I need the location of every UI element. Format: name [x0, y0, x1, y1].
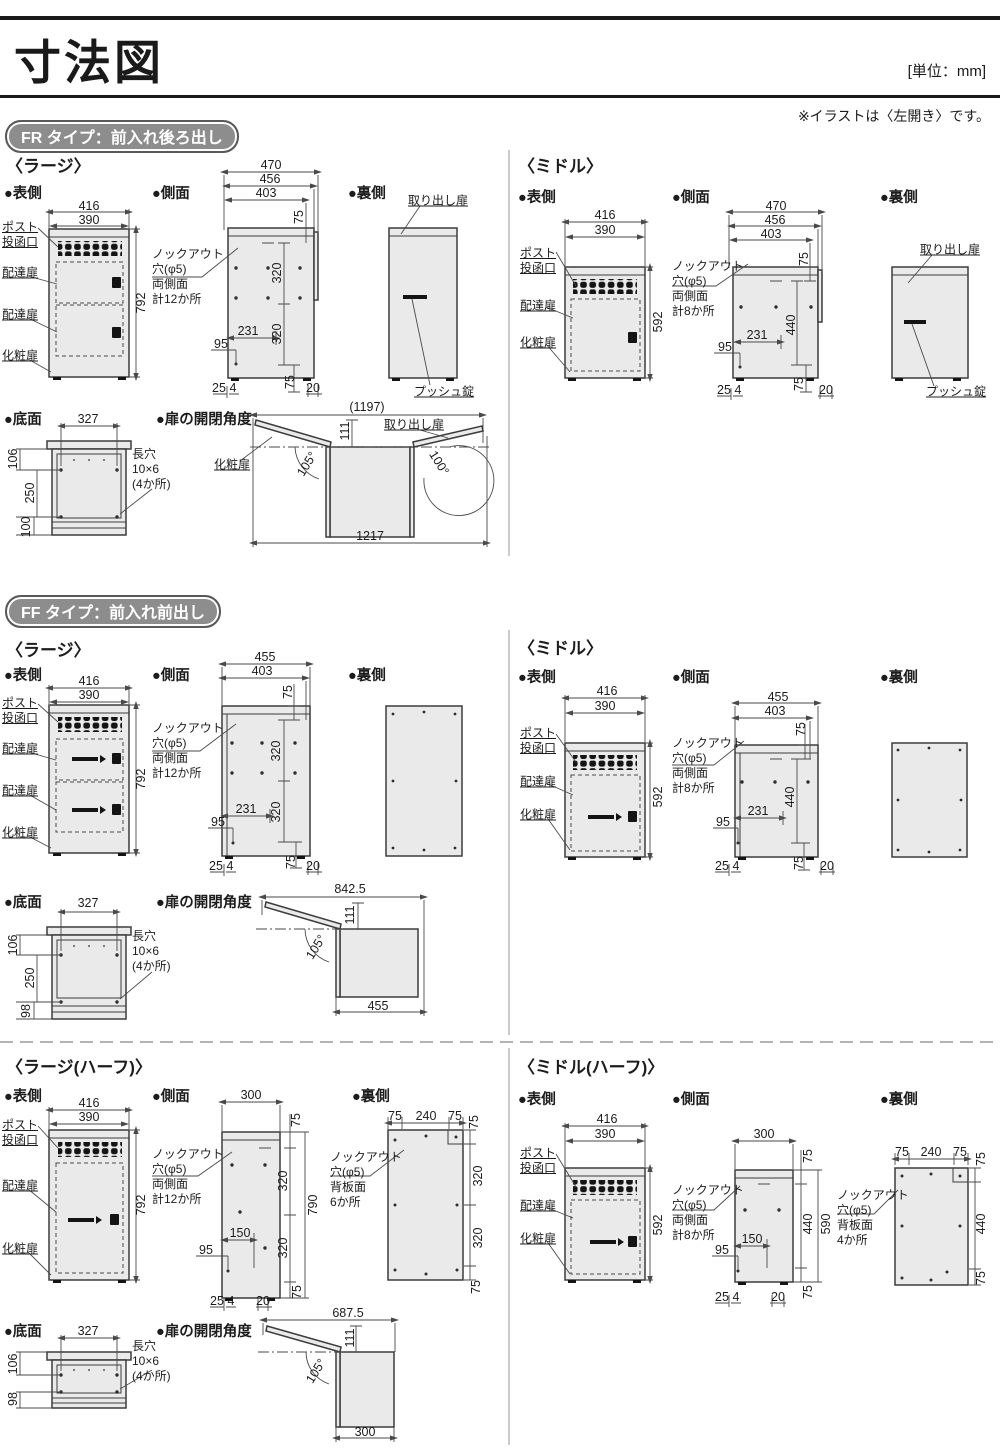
dim-bottom-width: 327: [78, 1324, 99, 1338]
dim-side-depth-inner: 403: [761, 227, 782, 241]
dim-front-height: 792: [134, 293, 148, 314]
dim-side: 25: [212, 381, 226, 395]
dimension-sheet: 寸法図 [単位：mm] ※イラストは〈左開き〉です。 FR タイプ：前入れ後ろ出…: [0, 0, 1000, 1456]
dim-front-width-outer: 416: [79, 199, 100, 213]
dim-knockout-pitch: 320: [276, 1238, 290, 1259]
dim-open: 111: [343, 905, 357, 924]
dim-side: 95: [718, 340, 732, 354]
dim-front-height: 792: [134, 1195, 148, 1216]
label-takeout-door: 取り出し扉: [384, 416, 444, 433]
dim-open-width: 687.5: [332, 1306, 363, 1320]
dim-front-width-outer: 416: [595, 208, 616, 222]
dim-front-width-outer: 416: [597, 684, 618, 698]
dim-side: 4: [228, 1294, 235, 1308]
dim-bottom: 106: [6, 449, 20, 470]
dim-side: 231: [238, 324, 259, 338]
dim-side-height: 590: [819, 1214, 833, 1235]
dim-side-height: 790: [306, 1195, 320, 1216]
dim-bottom: 100: [19, 517, 33, 538]
view-title-door-angle: ●扉の開閉角度: [156, 891, 252, 912]
label-push-lock: プッシュ錠: [414, 383, 474, 400]
dim-back: 75: [974, 1152, 988, 1166]
view-title-bottom: ●底面: [4, 1320, 42, 1341]
view-title-back: ●裏側: [352, 1085, 390, 1106]
label-delivery-door: 配達扉: [2, 740, 38, 757]
dim-side-depth: 456: [765, 213, 786, 227]
view-title-back: ●裏側: [348, 664, 386, 685]
dim-knockout-pitch: 320: [270, 324, 284, 345]
dim-side: 25: [210, 1294, 224, 1308]
label-delivery-door: 配達扉: [2, 1177, 38, 1194]
dim-back-width: 75: [953, 1145, 967, 1159]
label-delivery-door: 配達扉: [2, 782, 38, 799]
view-title-front: ●表側: [4, 664, 42, 685]
view-title-side: ●側面: [152, 664, 190, 685]
label-post-slot: ポスト 投函口: [2, 220, 38, 249]
dim-side: 4: [227, 859, 234, 873]
dim-side-depth-inner: 403: [252, 664, 273, 678]
dim-side: 231: [748, 804, 769, 818]
dim-back: 320: [471, 1228, 485, 1249]
dim-side-depth: 455: [255, 650, 276, 664]
dim-side: 75: [290, 1285, 304, 1299]
label-decorative-door: 化粧扉: [2, 347, 38, 364]
view-title-front: ●表側: [4, 1085, 42, 1106]
dim-side-depth: 300: [241, 1088, 262, 1102]
dim-side: 4: [733, 859, 740, 873]
dim-side: 75: [792, 856, 806, 870]
view-title-back: ●裏側: [880, 1088, 918, 1109]
note-slotted-hole: 長穴 10×6 (4か所): [132, 447, 171, 492]
note-slotted-hole: 長穴 10×6 (4か所): [132, 1339, 171, 1384]
dim-side: 20: [306, 381, 320, 395]
dim-bottom-width: 327: [78, 896, 99, 910]
dim-front-width-inner: 390: [79, 213, 100, 227]
subsection-title-middle-half: 〈ミドル(ハーフ)〉: [518, 1053, 664, 1078]
dim-knockout-pitch: 320: [276, 1171, 290, 1192]
dim-back-width: 240: [416, 1109, 437, 1123]
dim-front-width-inner: 390: [79, 688, 100, 702]
label-decorative-door: 化粧扉: [520, 1230, 556, 1247]
note-slotted-hole: 長穴 10×6 (4か所): [132, 929, 171, 974]
dim-back: 320: [471, 1166, 485, 1187]
dim-side: 4: [733, 1290, 740, 1304]
label-decorative-door: 化粧扉: [2, 824, 38, 841]
dim-box-depth: 300: [355, 1425, 376, 1439]
note-knockout-back: ノックアウト 穴(φ5) 背板面 6か所: [330, 1150, 402, 1210]
dim-side: 25: [715, 859, 729, 873]
view-title-back: ●裏側: [880, 666, 918, 687]
subsection-title-middle: 〈ミドル〉: [518, 152, 603, 177]
view-title-front: ●表側: [4, 182, 42, 203]
dim-knockout-pitch: 320: [269, 802, 283, 823]
label-delivery-door: 配達扉: [520, 1197, 556, 1214]
dim-knockout-offset: 75: [292, 210, 306, 224]
dim-side: 95: [716, 815, 730, 829]
label-decorative-door: 化粧扉: [520, 334, 556, 351]
view-title-bottom: ●底面: [4, 408, 42, 429]
note-knockout: ノックアウト 穴(φ5) 両側面 計8か所: [672, 736, 744, 796]
dim-back: 75: [467, 1115, 481, 1129]
dim-knockout-pitch: 440: [784, 315, 798, 336]
label-delivery-door: 配達扉: [520, 773, 556, 790]
dim-open-width: 1217: [356, 529, 384, 543]
dim-front-height: 592: [651, 312, 665, 333]
dim-open-angle-front: 105°: [303, 932, 329, 961]
view-title-side: ●側面: [672, 1088, 710, 1109]
dim-open: 111: [338, 421, 352, 440]
note-knockout: ノックアウト 穴(φ5) 両側面 計12か所: [152, 247, 224, 307]
dim-side: 75: [801, 1285, 815, 1299]
dim-front-height: 792: [134, 769, 148, 790]
dim-front-width-outer: 416: [597, 1112, 618, 1126]
annotation-layer: 〈ラージ〉●表側416390792ポスト 投函口配達扉配達扉化粧扉●側面4704…: [0, 0, 1000, 1456]
dim-knockout-offset: 75: [801, 1149, 815, 1163]
view-title-door-angle: ●扉の開閉角度: [156, 1320, 252, 1341]
view-title-door-angle: ●扉の開閉角度: [156, 408, 252, 429]
dim-bottom: 98: [6, 1392, 20, 1406]
dim-side-depth-inner: 403: [256, 186, 277, 200]
dim-knockout-offset: 75: [281, 685, 295, 699]
subsection-title-large-half: 〈ラージ(ハーフ)〉: [6, 1053, 152, 1078]
label-takeout-door: 取り出し扉: [920, 241, 980, 258]
dim-open-angle-front: 105°: [303, 1356, 329, 1385]
dim-open-width-ref: (1197): [349, 400, 384, 414]
dim-front-width-outer: 416: [79, 674, 100, 688]
dim-side: 4: [735, 383, 742, 397]
dim-open-angle-rear: 100°: [426, 448, 452, 477]
subsection-title-large: 〈ラージ〉: [6, 152, 91, 177]
dim-side: 20: [819, 383, 833, 397]
note-knockout: ノックアウト 穴(φ5) 両側面 計12か所: [152, 1147, 224, 1207]
label-post-slot: ポスト 投函口: [520, 1146, 556, 1175]
label-push-lock: プッシュ錠: [926, 383, 986, 400]
dim-back-width: 75: [388, 1109, 402, 1123]
dim-bottom: 106: [6, 935, 20, 956]
dim-side: 231: [236, 802, 257, 816]
dim-side: 95: [214, 337, 228, 351]
dim-side-depth: 300: [754, 1127, 775, 1141]
dim-front-width-inner: 390: [595, 699, 616, 713]
dim-front-height: 592: [651, 1215, 665, 1236]
dim-open-angle-front: 105°: [294, 449, 320, 478]
dim-bottom: 250: [23, 483, 37, 504]
dim-side: 20: [256, 1294, 270, 1308]
dim-knockout-pitch: 320: [270, 263, 284, 284]
dim-front-width-inner: 390: [79, 1110, 100, 1124]
dim-side: 95: [199, 1243, 213, 1257]
dim-side-depth: 455: [768, 690, 789, 704]
view-title-back: ●裏側: [880, 186, 918, 207]
dim-knockout-offset: 75: [794, 722, 808, 736]
dim-side: 75: [283, 375, 297, 389]
view-title-side: ●側面: [152, 182, 190, 203]
dim-bottom: 250: [23, 968, 37, 989]
label-post-slot: ポスト 投函口: [2, 1118, 38, 1147]
subsection-title-large: 〈ラージ〉: [6, 636, 91, 661]
dim-front-width-inner: 390: [595, 223, 616, 237]
dim-side: 20: [771, 1290, 785, 1304]
note-knockout: ノックアウト 穴(φ5) 両側面 計8か所: [672, 1183, 744, 1243]
dim-knockout-offset: 75: [289, 1113, 303, 1127]
dim-knockout-pitch: 440: [783, 787, 797, 808]
dim-side: 75: [792, 377, 806, 391]
dim-side: 4: [230, 381, 237, 395]
dim-bottom-width: 327: [78, 412, 99, 426]
label-decorative-door: 化粧扉: [2, 1240, 38, 1257]
view-title-side: ●側面: [152, 1085, 190, 1106]
label-delivery-door: 配達扉: [2, 264, 38, 281]
view-title-side: ●側面: [672, 186, 710, 207]
label-post-slot: ポスト 投函口: [520, 246, 556, 275]
view-title-front: ●表側: [518, 1088, 556, 1109]
dim-knockout-offset: 75: [797, 252, 811, 266]
dim-side: 150: [742, 1232, 763, 1246]
subsection-title-middle: 〈ミドル〉: [518, 634, 603, 659]
label-post-slot: ポスト 投函口: [520, 726, 556, 755]
dim-back: 75: [469, 1280, 483, 1294]
dim-side: 20: [820, 859, 834, 873]
view-title-bottom: ●底面: [4, 891, 42, 912]
dim-bottom: 98: [19, 1004, 33, 1018]
view-title-front: ●表側: [518, 186, 556, 207]
dim-side: 95: [715, 1243, 729, 1257]
label-delivery-door: 配達扉: [520, 297, 556, 314]
dim-knockout-pitch: 320: [269, 741, 283, 762]
note-knockout: ノックアウト 穴(φ5) 両側面 計8か所: [672, 259, 744, 319]
dim-back: 440: [974, 1214, 988, 1235]
note-knockout-back: ノックアウト 穴(φ5) 背板面 4か所: [837, 1188, 909, 1248]
dim-bottom: 106: [6, 1354, 20, 1375]
dim-box-depth: 455: [368, 999, 389, 1013]
dim-side: 20: [306, 859, 320, 873]
view-title-back: ●裏側: [348, 182, 386, 203]
dim-back-width: 75: [895, 1145, 909, 1159]
label-decorative-door: 化粧扉: [520, 806, 556, 823]
label-post-slot: ポスト 投函口: [2, 696, 38, 725]
dim-front-height: 592: [651, 787, 665, 808]
dim-back: 75: [974, 1271, 988, 1285]
label-delivery-door: 配達扉: [2, 306, 38, 323]
note-knockout: ノックアウト 穴(φ5) 両側面 計12か所: [152, 721, 224, 781]
dim-back-width: 75: [448, 1109, 462, 1123]
dim-front-width-outer: 416: [79, 1096, 100, 1110]
dim-front-width-inner: 390: [595, 1127, 616, 1141]
label-takeout-door: 取り出し扉: [408, 192, 468, 209]
dim-side: 231: [747, 328, 768, 342]
dim-side-depth: 456: [260, 172, 281, 186]
dim-side: 150: [230, 1226, 251, 1240]
dim-side-depth-overall: 470: [766, 199, 787, 213]
dim-side-depth-inner: 403: [765, 704, 786, 718]
dim-side-depth-overall: 470: [261, 158, 282, 172]
dim-open: 111: [343, 1328, 357, 1347]
dim-side: 25: [715, 1290, 729, 1304]
dim-side: 25: [717, 383, 731, 397]
dim-side: 75: [284, 855, 298, 869]
dim-knockout-pitch: 440: [801, 1214, 815, 1235]
dim-side: 95: [211, 815, 225, 829]
dim-open-width: 842.5: [334, 882, 365, 896]
dim-side: 25: [209, 859, 223, 873]
view-title-front: ●表側: [518, 666, 556, 687]
label-decorative-door: 化粧扉: [214, 456, 250, 473]
dim-back-width: 240: [921, 1145, 942, 1159]
view-title-side: ●側面: [672, 666, 710, 687]
